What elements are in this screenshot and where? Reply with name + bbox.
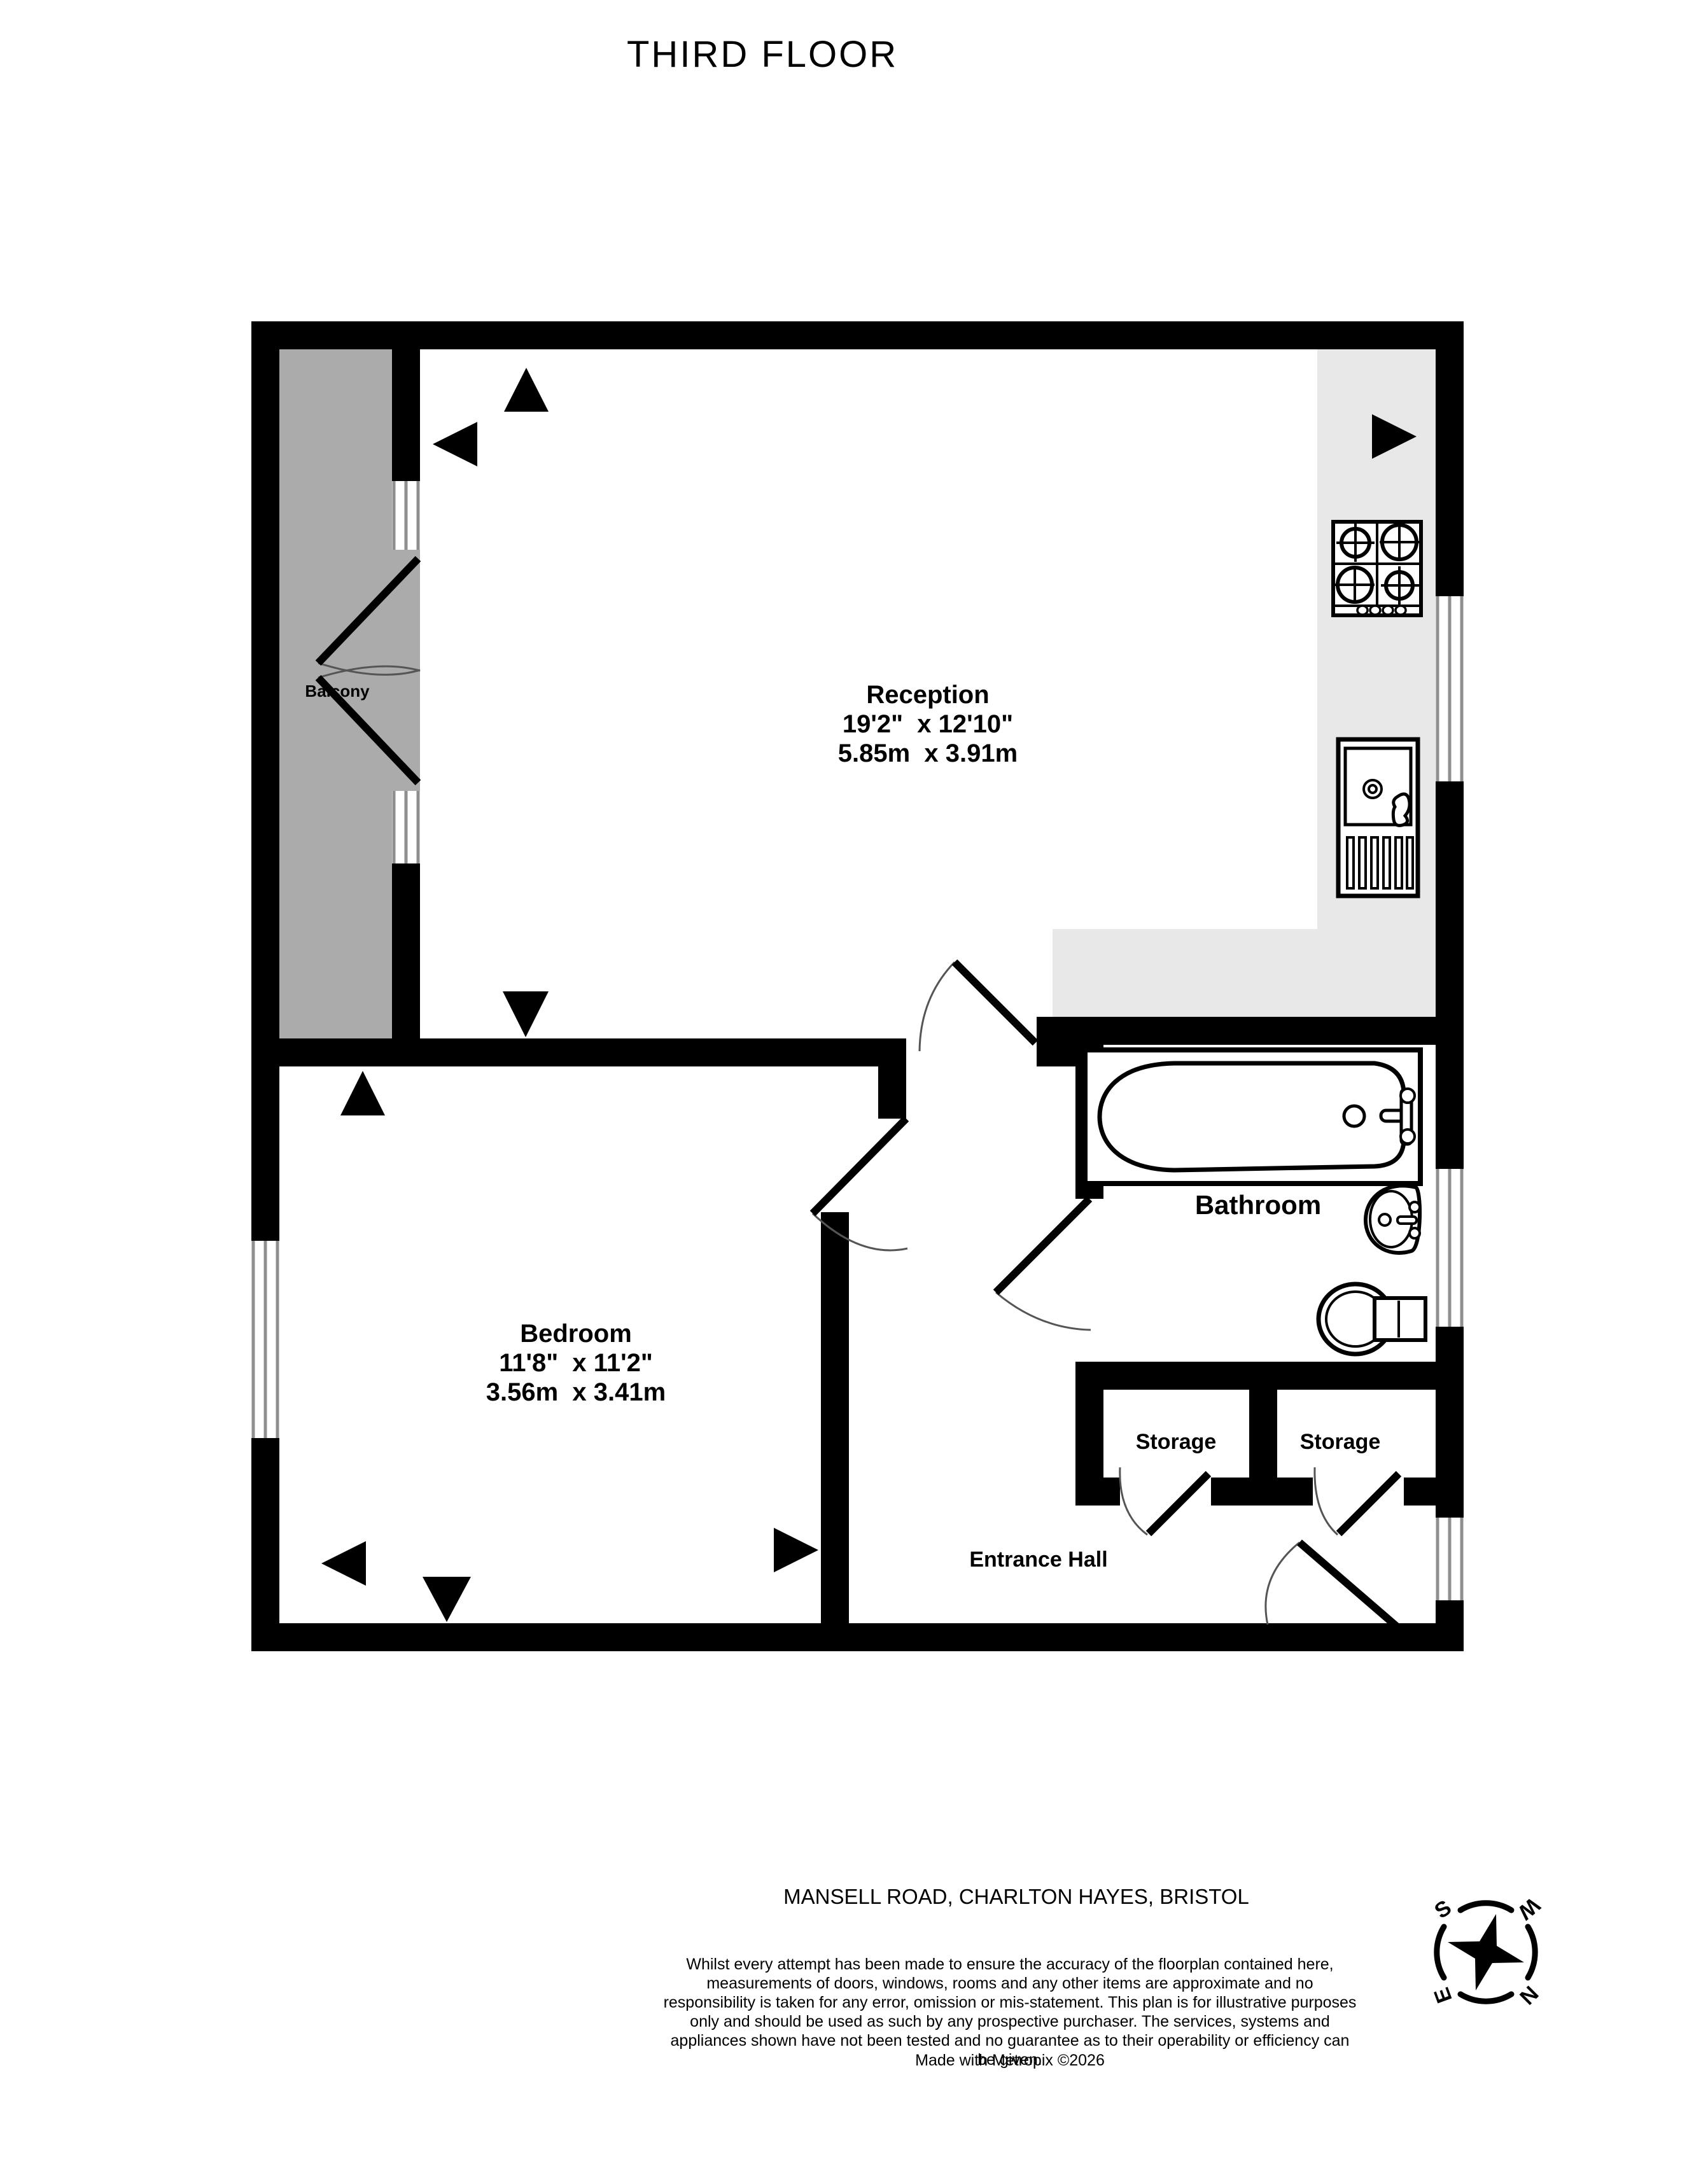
sink-icon — [1338, 739, 1418, 896]
reception-dims-imperial: 19'2" x 12'10" — [843, 710, 1013, 738]
bath-icon — [1085, 1050, 1420, 1184]
hob-icon — [1333, 522, 1421, 615]
basin-icon — [1366, 1185, 1420, 1253]
arrow-up-icon — [504, 368, 549, 412]
storage-2-label: Storage — [1300, 1430, 1381, 1454]
compass-s: S — [1430, 1896, 1455, 1924]
door-storage-1 — [1120, 1467, 1208, 1535]
property-address: MANSELL ROAD, CHARLTON HAYES, BRISTOL — [698, 1885, 1334, 1909]
door-storage-2 — [1315, 1467, 1399, 1535]
balcony-label: Balcony — [305, 681, 370, 701]
bedroom-dims-metric: 3.56m x 3.41m — [486, 1378, 666, 1406]
door-entrance — [1266, 1542, 1397, 1627]
entrance-hall-label: Entrance Hall — [969, 1548, 1107, 1572]
window-bedroom — [253, 1241, 277, 1438]
door-reception — [920, 962, 1035, 1051]
window-kitchen — [1438, 596, 1462, 781]
made-with-credit: Made with Metropix ©2026 — [660, 2051, 1360, 2070]
window-hall — [1438, 1518, 1462, 1600]
window-bathroom — [1438, 1169, 1462, 1327]
reception-label: Reception — [866, 681, 989, 709]
arrow-down-icon — [423, 1577, 471, 1622]
bedroom-label: Bedroom — [520, 1320, 632, 1348]
arrow-up-icon — [340, 1071, 385, 1115]
bedroom-dims-imperial: 11'8" x 11'2" — [499, 1349, 653, 1377]
window-balcony-top — [394, 481, 418, 550]
door-bathroom — [996, 1199, 1091, 1330]
arrow-left-icon — [433, 422, 477, 466]
arrow-right-icon — [774, 1528, 818, 1572]
window-balcony-bottom — [394, 791, 418, 863]
compass-e: E — [1429, 1985, 1457, 2006]
compass-n: N — [1515, 1981, 1543, 2009]
toilet-icon — [1319, 1284, 1425, 1354]
bathroom-label: Bathroom — [1195, 1190, 1321, 1220]
compass-icon: S W E N — [1429, 1892, 1544, 2009]
arrow-left-icon — [321, 1541, 366, 1586]
storage-1-label: Storage — [1136, 1430, 1217, 1454]
arrow-down-icon — [503, 991, 549, 1037]
compass-w: W — [1513, 1892, 1544, 1924]
reception-dims-metric: 5.85m x 3.91m — [838, 739, 1018, 767]
floorplan: Reception 19'2" x 12'10" 5.85m x 3.91m B… — [0, 0, 1708, 2166]
